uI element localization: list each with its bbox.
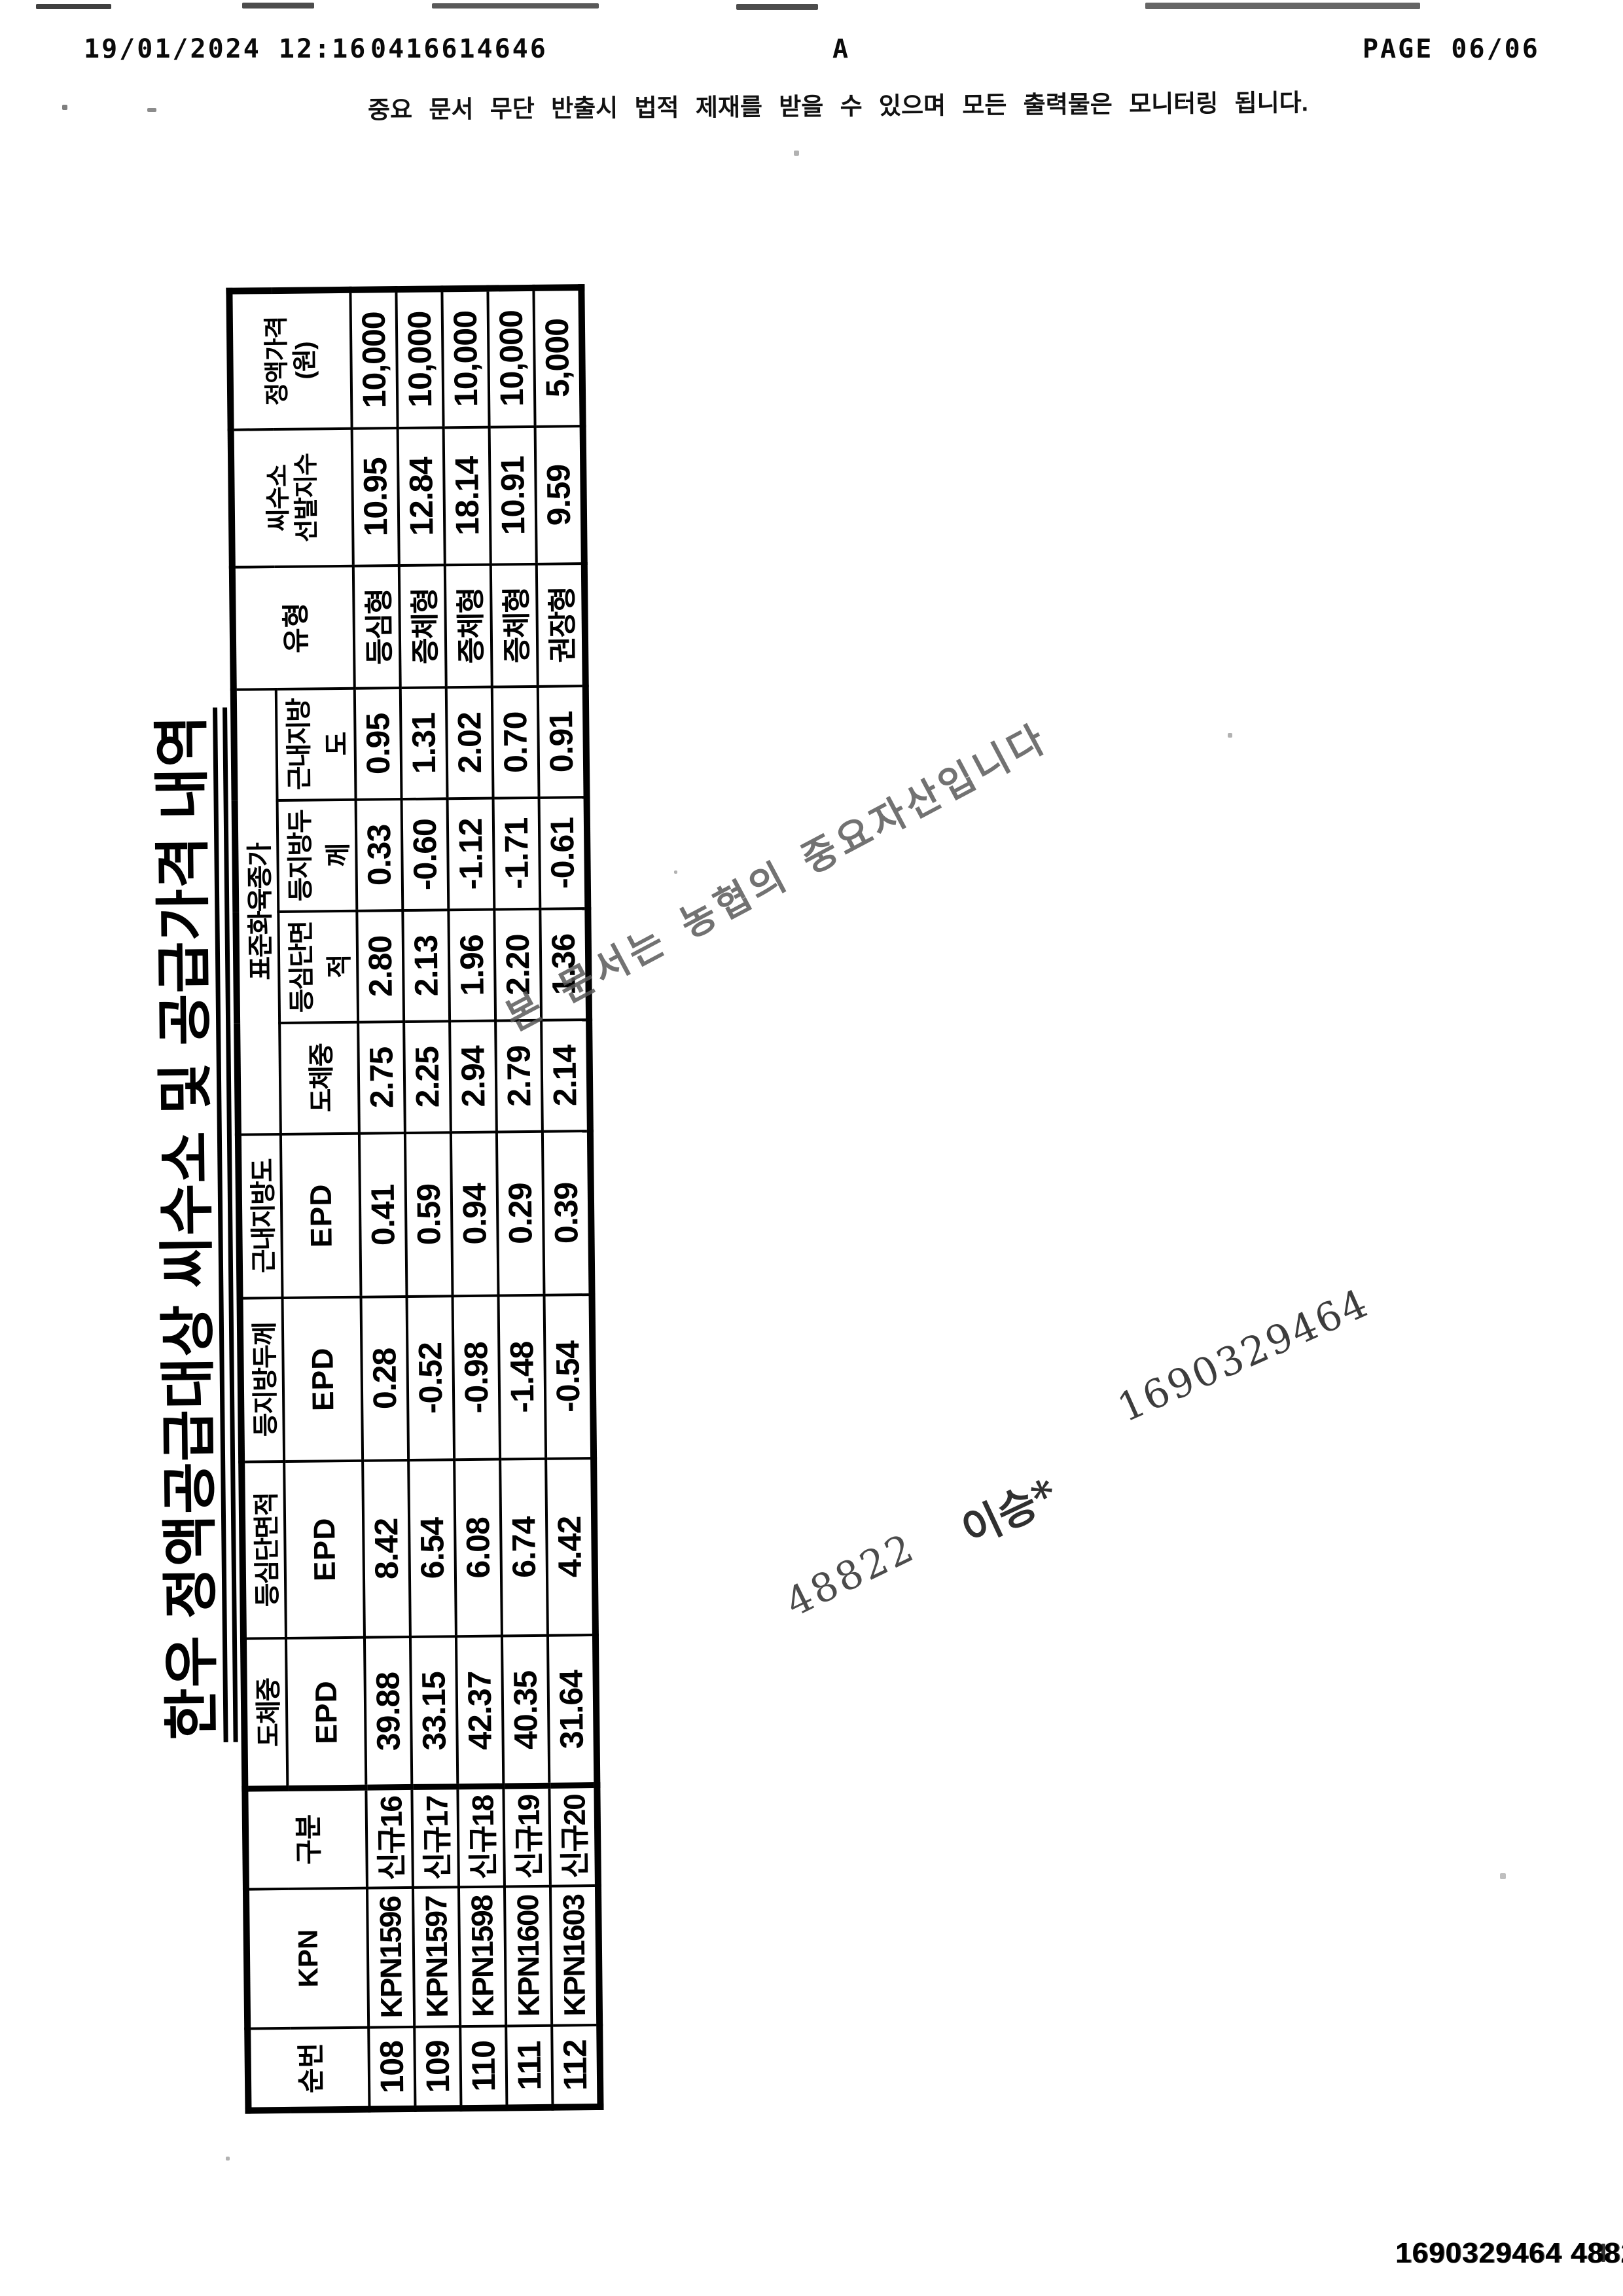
cell-std-loin: 2.80 [357, 910, 404, 1022]
cell-std-backfat: -0.61 [539, 797, 588, 909]
scan-speck [1228, 733, 1232, 738]
col-header-selection-index: 씨수소 선발지수 [230, 429, 353, 567]
col-header-loin-area: 등심단면적 [241, 1462, 286, 1639]
cell-price: 10,000 [396, 289, 443, 428]
cell-epd-loin: 6.08 [454, 1460, 502, 1637]
cell-price: 10,000 [488, 288, 535, 427]
cell-std-carcass: 2.75 [358, 1022, 405, 1134]
scan-speck [147, 108, 156, 112]
cell-epd-carcass: 40.35 [502, 1636, 549, 1787]
col-header-standardized-ebv-group: 표준화육종가 [234, 689, 281, 1135]
scan-smudge [736, 4, 818, 10]
cell-epd-marbling: 0.94 [451, 1132, 499, 1297]
subheader-epd-loin: EPD [284, 1461, 365, 1638]
col-header-category: 구분 [245, 1788, 367, 1890]
fax-transmission-header: 19/01/2024 12:16 0416614646 A PAGE 06/06 [0, 34, 1623, 73]
cell-std-loin: 1.96 [448, 910, 495, 1022]
cell-std-marbling: 0.91 [538, 686, 587, 798]
cell-type: 증체형 [445, 565, 492, 688]
cell-epd-backfat: -0.52 [406, 1296, 454, 1460]
cell-category: 신규17 [412, 1787, 459, 1888]
cell-epd-backfat: -0.54 [544, 1295, 594, 1459]
cell-std-marbling: 0.95 [355, 688, 402, 800]
col-header-semen-price-line2: (원) [291, 293, 320, 427]
cell-epd-marbling: 0.39 [543, 1131, 592, 1295]
subheader-epd-backfat: EPD [282, 1297, 363, 1462]
cell-kpn: KPN1598 [459, 1886, 506, 2026]
scan-speck [674, 870, 677, 874]
col-header-selection-index-line1: 씨수소 [264, 431, 294, 565]
col-header-carcass-weight: 도체중 [243, 1638, 287, 1789]
security-notice: 중요 문서 무단 반출시 법적 제재를 받을 수 있으며 모든 출력물은 모니터… [368, 82, 1308, 125]
stamp-code-number: 48822 [779, 1524, 923, 1626]
subheader-epd-carcass: EPD [286, 1638, 366, 1789]
cell-kpn: KPN1597 [413, 1887, 460, 2027]
fax-scan-page: 19/01/2024 12:16 0416614646 A PAGE 06/06… [0, 0, 1623, 2296]
cell-epd-backfat: 0.28 [361, 1297, 408, 1461]
col-header-selection-index-line2: 선발지수 [293, 430, 322, 565]
cell-type: 등심형 [353, 565, 401, 689]
cell-epd-loin: 6.54 [408, 1460, 456, 1637]
document-title: 한우 정액공급대상 씨수소 및 공급가격 내역 [152, 708, 238, 1743]
cell-index: 18.14 [443, 427, 490, 565]
col-header-kpn: KPN [246, 1888, 368, 2029]
fax-id: 0416614646 [370, 34, 548, 64]
cell-std-backfat: 0.33 [355, 799, 402, 911]
cell-index: 10.95 [351, 428, 399, 566]
subheader-std-backfat: 등지방두께 [277, 800, 357, 912]
col-header-backfat: 등지방두께 [240, 1298, 284, 1462]
scan-speck [226, 2157, 230, 2161]
footer-serial-code: 1690329464 48822 [1395, 2237, 1623, 2270]
cell-std-marbling: 2.02 [446, 687, 493, 799]
cell-type: 증체형 [399, 565, 446, 688]
cell-kpn: KPN1596 [367, 1888, 414, 2028]
col-header-type: 유형 [232, 566, 355, 690]
subheader-epd-marbling: EPD [281, 1134, 361, 1298]
cell-epd-carcass: 31.64 [548, 1635, 597, 1786]
cell-seq: 109 [414, 2026, 461, 2109]
fax-mode: A [832, 34, 850, 64]
cell-type: 증체형 [491, 564, 538, 687]
cell-std-marbling: 0.70 [492, 687, 539, 798]
cell-std-backfat: -1.12 [447, 798, 494, 910]
cell-epd-backfat: -1.48 [498, 1295, 546, 1460]
col-header-semen-price-line1: 정액가격 [263, 294, 293, 428]
cell-epd-carcass: 33.15 [410, 1636, 457, 1787]
cell-seq: 111 [506, 2026, 552, 2108]
cell-epd-marbling: 0.29 [497, 1132, 544, 1296]
cell-type: 권장형 [537, 564, 586, 687]
cell-seq: 108 [368, 2027, 415, 2109]
stamp-user-name: 이승* [951, 1461, 1066, 1557]
cell-std-carcass: 2.94 [450, 1021, 497, 1133]
fax-page-counter: PAGE 06/06 [1363, 34, 1540, 64]
cell-price: 5,000 [533, 287, 582, 427]
cell-category: 신규16 [366, 1787, 413, 1888]
scan-speck [1500, 1873, 1506, 1879]
col-header-semen-price: 정액가격 (원) [229, 290, 351, 430]
col-header-marbling: 근내지방도 [238, 1134, 283, 1299]
cell-epd-loin: 8.42 [363, 1460, 410, 1638]
stamp-serial-number: 1690329464 [1111, 1280, 1376, 1431]
cell-epd-marbling: 0.41 [359, 1133, 407, 1297]
cell-kpn: KPN1603 [550, 1886, 599, 2026]
scan-speck [62, 105, 67, 110]
scan-smudge [36, 4, 111, 9]
fax-datetime: 19/01/2024 12:16 [84, 34, 367, 64]
cell-seq: 110 [460, 2026, 507, 2108]
cell-epd-carcass: 39.88 [365, 1637, 412, 1788]
cell-category: 신규18 [457, 1786, 505, 1887]
subheader-std-loin: 등심단면적 [278, 911, 358, 1023]
cell-kpn: KPN1600 [505, 1886, 552, 2026]
cell-std-backfat: -0.60 [401, 798, 448, 910]
rotated-document: 한우 정액공급대상 씨수소 및 공급가격 내역 순번 KPN 구분 도체중 등심… [147, 291, 539, 2115]
subheader-std-carcass: 도체중 [279, 1022, 359, 1134]
scan-smudge [242, 3, 314, 9]
cell-std-carcass: 2.14 [541, 1020, 590, 1132]
scan-speck [794, 151, 799, 156]
bull-semen-price-table: 순번 KPN 구분 도체중 등심단면적 등지방두께 근내지방도 표준화육종가 유… [226, 284, 603, 2114]
cell-std-marbling: 1.31 [401, 687, 448, 799]
cell-epd-loin: 6.74 [500, 1459, 548, 1636]
cell-seq: 112 [552, 2025, 600, 2108]
cell-index: 10.91 [489, 427, 536, 565]
cell-epd-marbling: 0.59 [405, 1132, 453, 1297]
cell-price: 10,000 [350, 289, 397, 429]
cell-price: 10,000 [442, 289, 489, 428]
col-header-seq: 순번 [247, 2028, 369, 2111]
cell-std-loin: 2.13 [402, 910, 450, 1022]
scan-smudge [432, 3, 599, 9]
subheader-std-marbling: 근내지방도 [276, 689, 356, 800]
scan-tick [1601, 2244, 1605, 2262]
cell-std-backfat: -1.71 [493, 798, 540, 910]
cell-index: 9.59 [535, 426, 584, 564]
scan-smudge [1145, 3, 1420, 9]
cell-epd-loin: 4.42 [546, 1458, 596, 1636]
cell-index: 12.84 [397, 427, 444, 565]
cell-category: 신규19 [503, 1786, 550, 1887]
cell-epd-backfat: -0.98 [452, 1296, 500, 1460]
cell-epd-carcass: 42.37 [456, 1636, 503, 1787]
cell-category: 신규20 [549, 1785, 598, 1886]
cell-std-carcass: 2.25 [404, 1021, 451, 1133]
